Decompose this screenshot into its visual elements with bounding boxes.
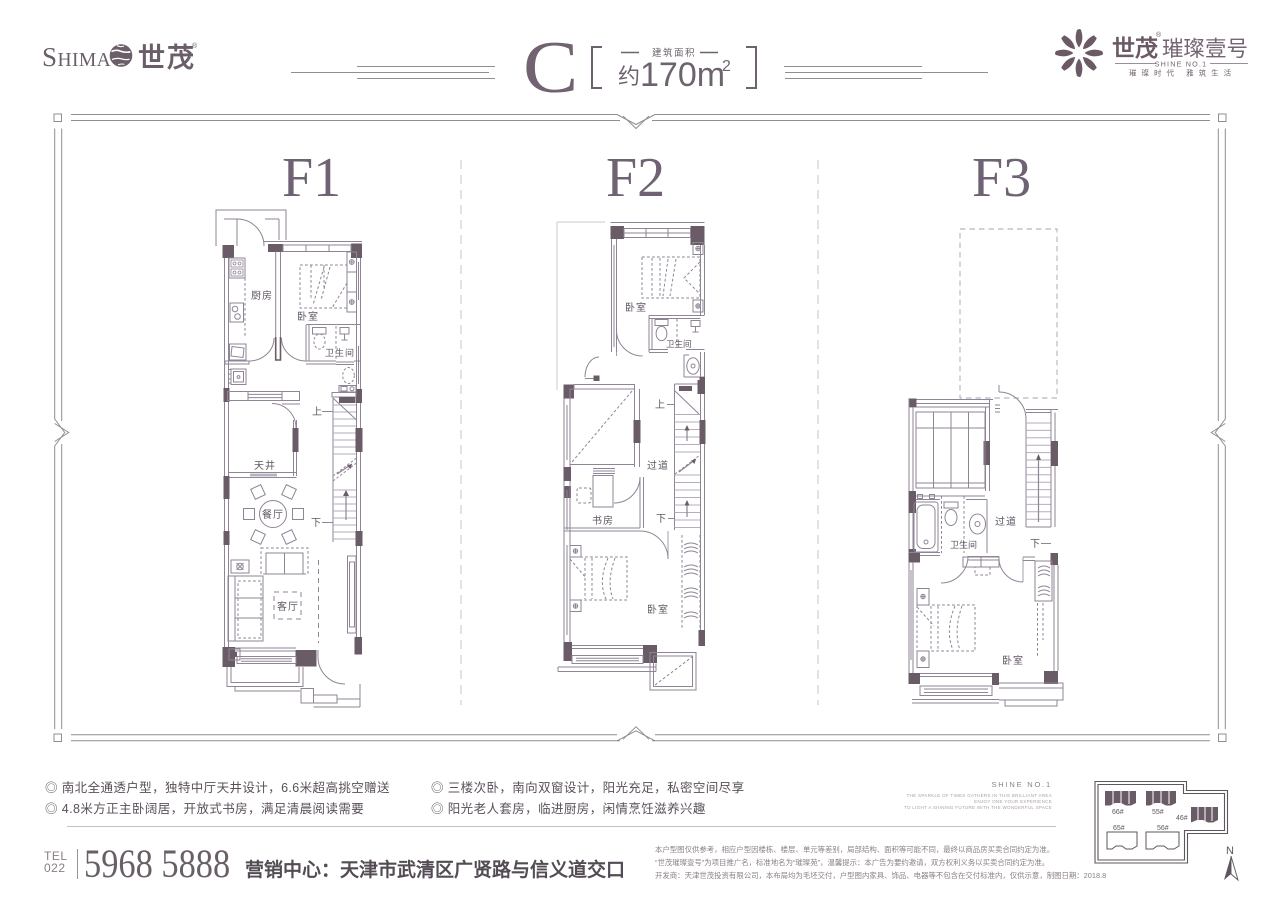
svg-text:餐厅: 餐厅 [262, 508, 284, 521]
svg-text:55#: 55# [1152, 809, 1164, 816]
svg-text:65#: 65# [1113, 825, 1125, 832]
svg-text:N: N [1226, 845, 1234, 857]
svg-text:卫生间: 卫生间 [325, 347, 355, 358]
svg-text:下: 下 [1030, 539, 1041, 550]
svg-text:上: 上 [655, 399, 666, 411]
svg-text:66#: 66# [1112, 809, 1124, 816]
svg-text:过道: 过道 [647, 459, 669, 472]
svg-text:卫生间: 卫生间 [666, 339, 692, 349]
svg-text:下: 下 [311, 518, 322, 529]
svg-text:56#: 56# [1157, 825, 1169, 832]
svg-text:卧室: 卧室 [1002, 654, 1024, 667]
svg-text:卧室: 卧室 [647, 603, 669, 616]
svg-text:天井: 天井 [254, 459, 276, 472]
svg-text:下: 下 [656, 514, 667, 525]
svg-text:上: 上 [312, 406, 323, 418]
svg-text:过道: 过道 [995, 515, 1017, 528]
svg-text:客厅: 客厅 [277, 600, 299, 613]
svg-text:卧室: 卧室 [297, 310, 319, 323]
svg-text:46#: 46# [1176, 815, 1188, 822]
svg-text:卫生间: 卫生间 [950, 539, 977, 550]
svg-text:卧室: 卧室 [625, 301, 647, 314]
svg-text:书房: 书房 [592, 514, 614, 527]
svg-text:厨房: 厨房 [251, 289, 273, 302]
